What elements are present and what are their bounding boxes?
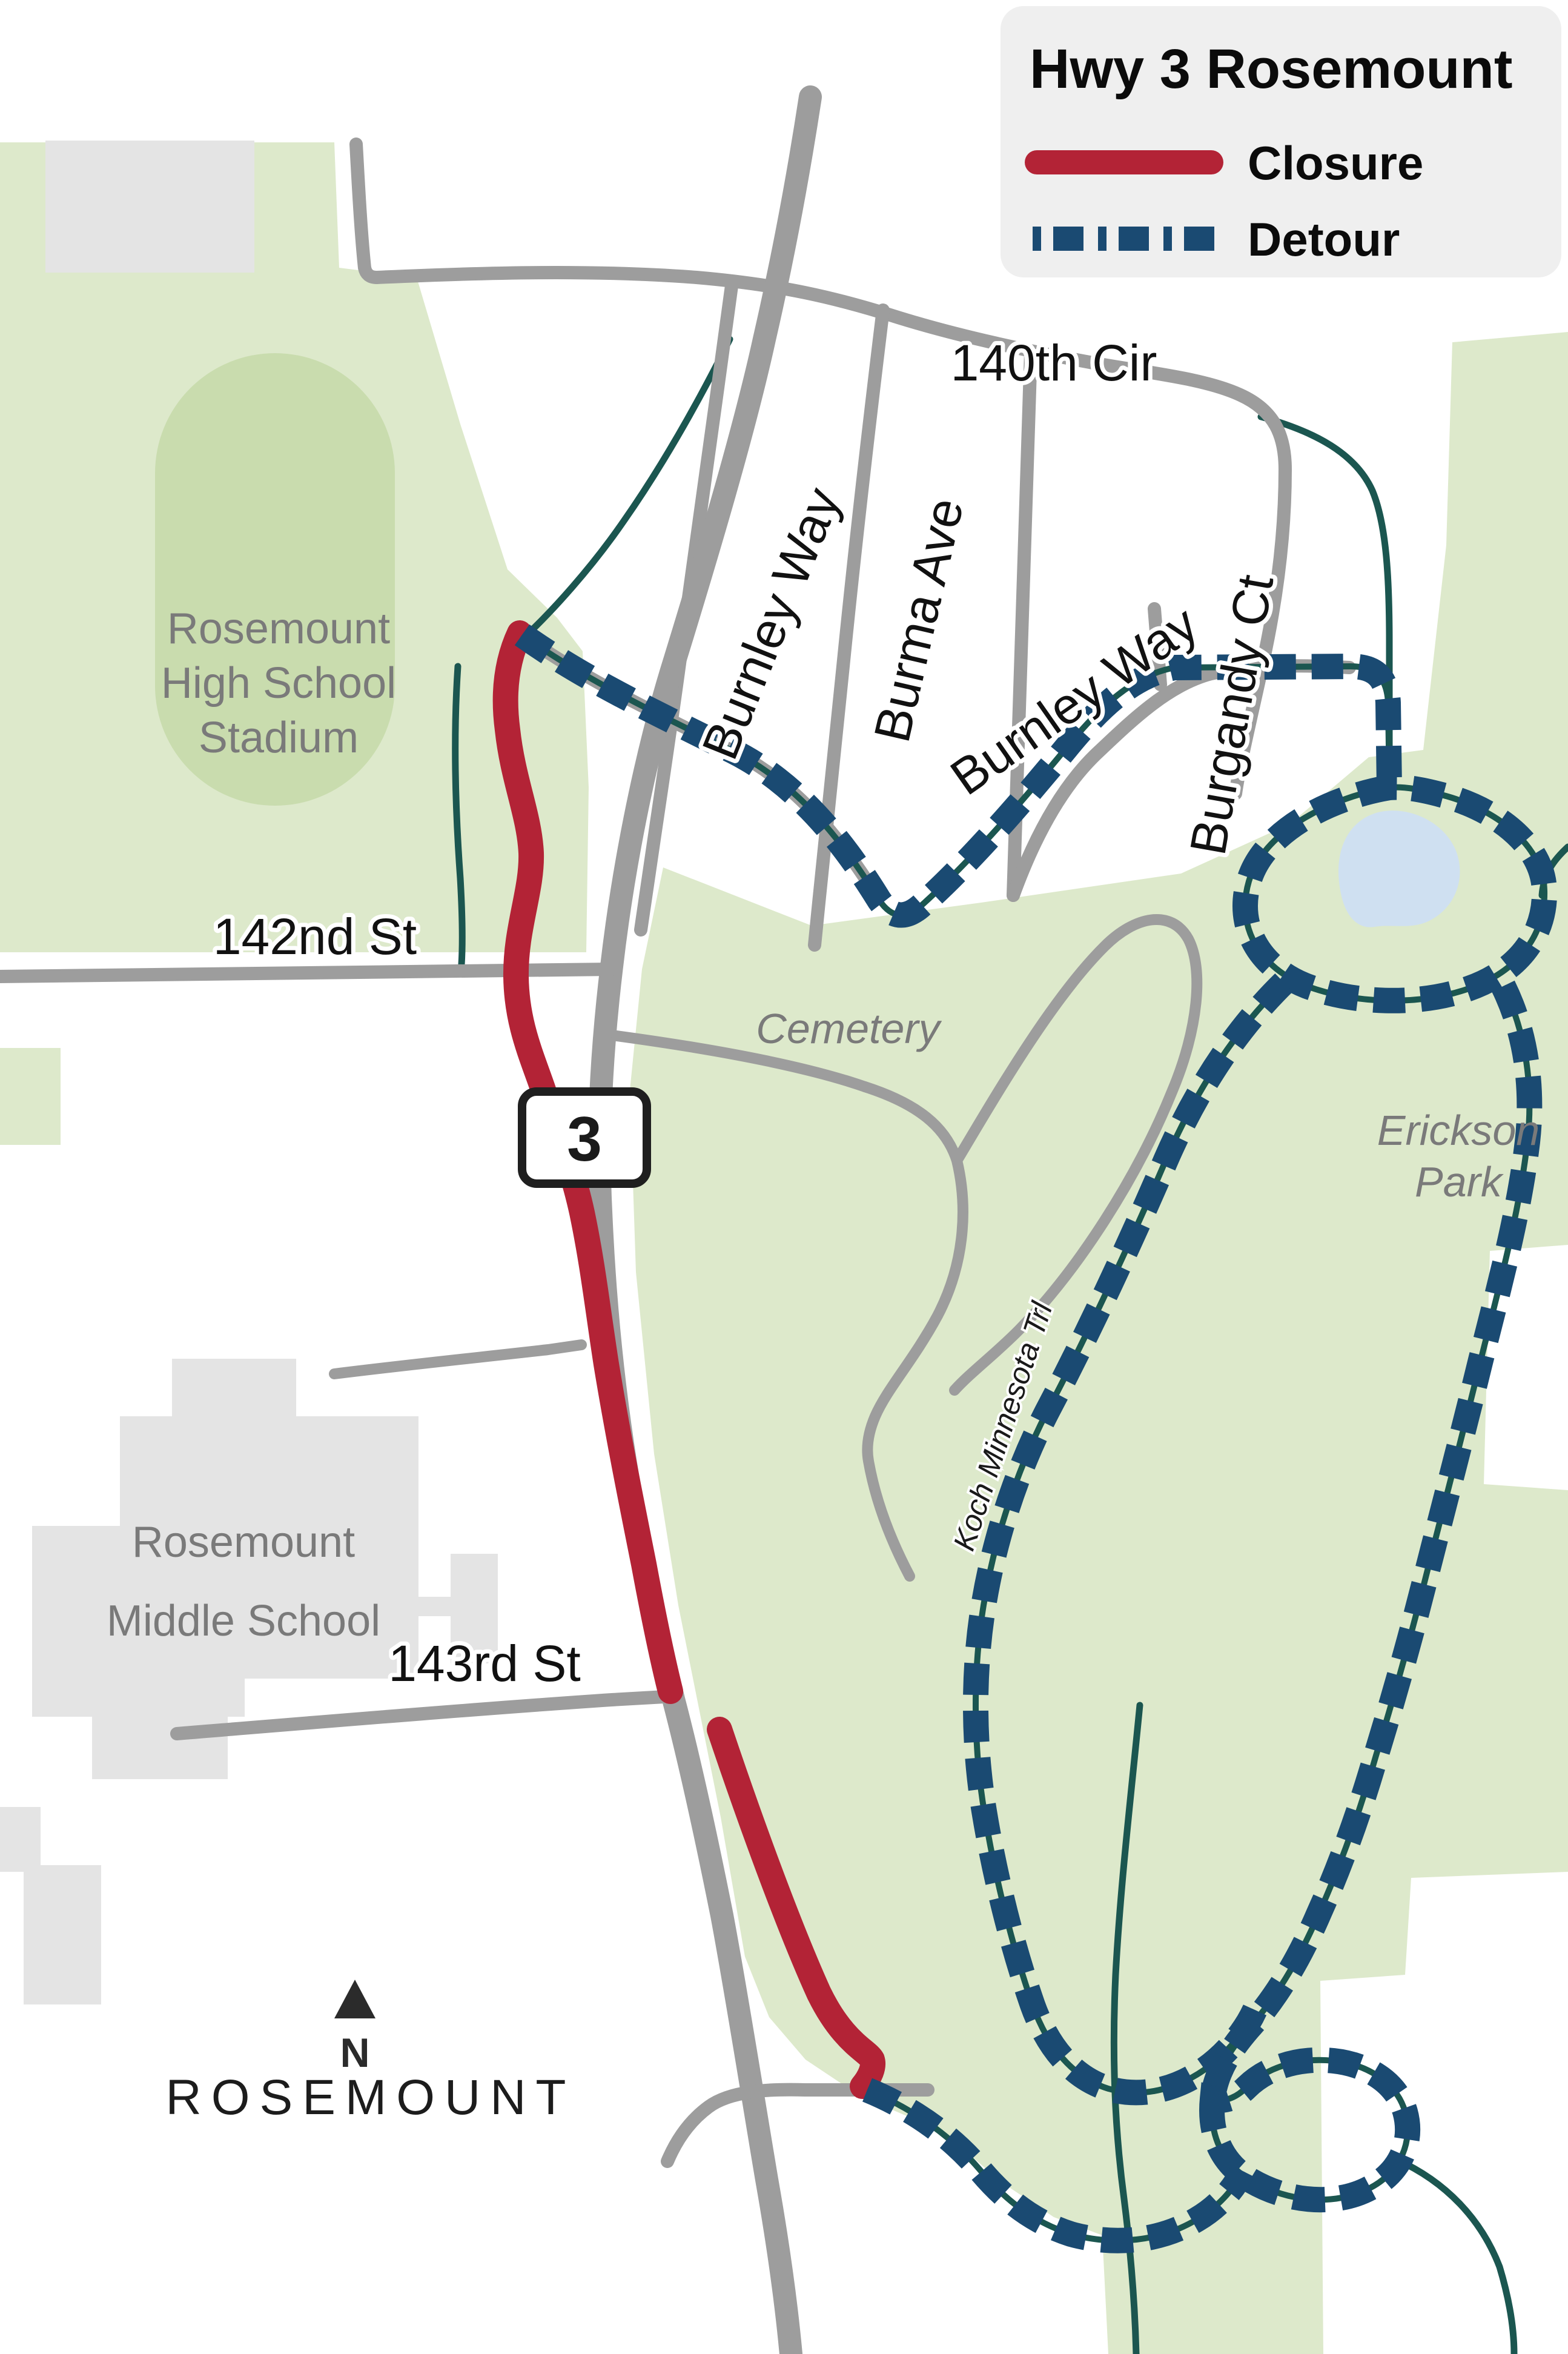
label-middle-school: Rosemount (132, 1518, 355, 1567)
label-cemetery: Cemetery (756, 1005, 942, 1052)
label-burma-ave: Burma Ave (863, 492, 974, 747)
label-stadium: Rosemount (167, 605, 390, 653)
road-school-driveway (334, 1345, 581, 1374)
legend: Hwy 3 Rosemount Closure Detour (1001, 6, 1561, 277)
building-northwest (45, 141, 254, 273)
middle-school-building (417, 1597, 453, 1616)
label-burgandy-ct: Burgandy Ct (1179, 571, 1285, 859)
label-142nd-st: 142nd St (213, 908, 417, 965)
label-erickson-park: Erickson (1377, 1107, 1540, 1154)
north-arrow-letter: N (340, 2030, 369, 2076)
middle-school-building (172, 1359, 296, 1416)
left-edge-green-area (0, 1048, 61, 1145)
building-left-edge (24, 1865, 101, 2004)
road-143rd-st (177, 1696, 675, 1734)
north-arrow-icon (334, 1980, 375, 2018)
label-stadium: High School (161, 659, 396, 708)
building-left-edge (0, 1807, 41, 1872)
label-erickson-park: Park (1415, 1158, 1504, 1205)
legend-closure-label: Closure (1248, 136, 1423, 190)
label-city-rosemount: ROSEMOUNT (166, 2070, 576, 2125)
park-areas (0, 142, 1568, 2354)
legend-title: Hwy 3 Rosemount (1030, 38, 1512, 100)
legend-detour-label: Detour (1248, 213, 1400, 266)
map-canvas: 3 140th Cir Burnley Way Burma Ave Burnle… (0, 0, 1568, 2354)
label-140th-cir: 140th Cir (951, 334, 1157, 391)
label-stadium: Stadium (199, 714, 359, 762)
label-143rd-st: 143rd St (388, 1635, 581, 1692)
north-arrow: N (334, 1980, 375, 2076)
stream-bottom-right (1397, 2160, 1514, 2354)
highway-shield-number: 3 (567, 1104, 602, 1175)
label-middle-school: Middle School (107, 1597, 380, 1645)
highway-shield: 3 (522, 1092, 647, 1184)
